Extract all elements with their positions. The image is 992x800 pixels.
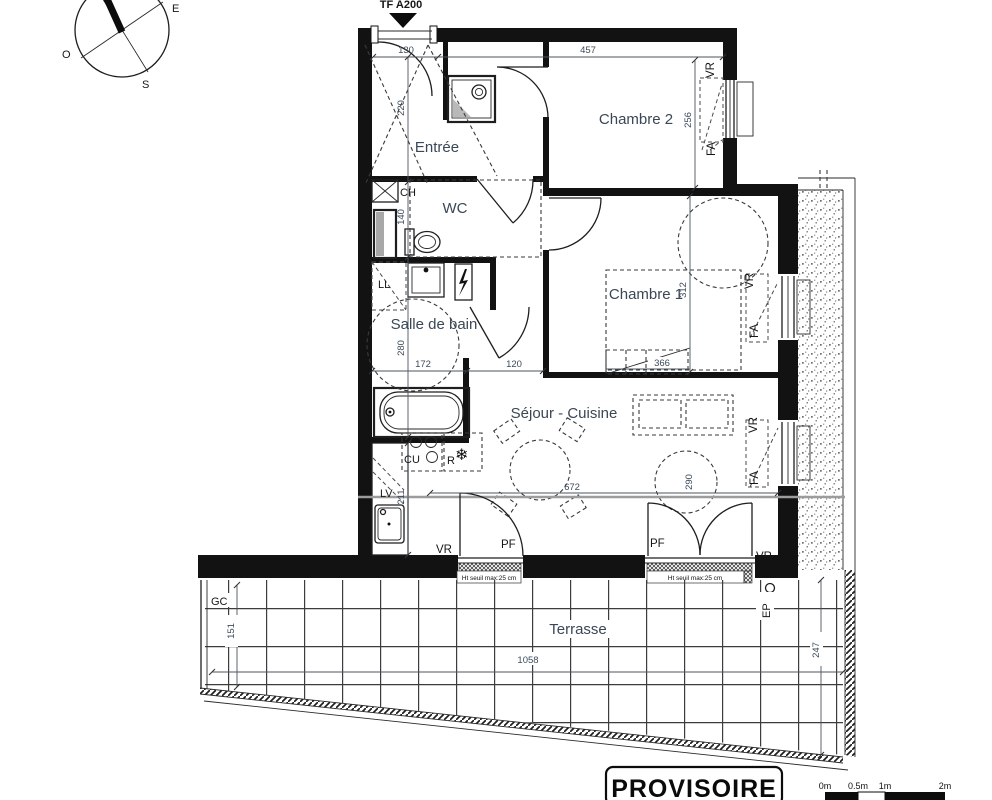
walls: [198, 26, 798, 578]
shower-drain-inner: [475, 88, 482, 95]
label-pf-right: PF: [650, 538, 665, 550]
scale-bar: 0m 0.5m 1m 2m: [819, 781, 952, 800]
compass-east: E: [172, 3, 179, 15]
dim-chambre1-width: 366: [654, 358, 670, 369]
wall-wc-top-right: [533, 176, 543, 182]
wall-facade-mid: [778, 340, 798, 420]
bed-chambre1: [606, 270, 741, 370]
stamp-text: PROVISOIRE: [611, 775, 777, 800]
duct-label: GC: [211, 596, 228, 608]
wall-top: [432, 28, 737, 42]
wall-bottom-left: [198, 555, 458, 578]
shutter-box: [737, 82, 753, 136]
room-label-chambre1: Chambre 1: [609, 286, 683, 303]
wc-zone-dash: [410, 180, 541, 257]
plan-reference: TF A200: [380, 0, 422, 11]
scale-seg-3: [885, 792, 945, 800]
room-label-chambre2: Chambre 2: [599, 111, 673, 128]
tub-rim: [380, 392, 463, 433]
shower-shade: [453, 99, 471, 117]
wall-sdb-stub: [490, 263, 496, 310]
toilet-bowl-inner: [419, 236, 436, 249]
sofa-cushion: [639, 400, 681, 428]
room-label-terrasse: Terrasse: [549, 621, 607, 638]
label-fa-sejour: FA: [749, 471, 761, 485]
wall-wc-top-left: [372, 176, 477, 182]
label-ch: CH: [400, 187, 416, 199]
dim-terrasse-left: 151: [226, 623, 237, 639]
dim-sejour-circle: 290: [684, 474, 695, 490]
entrance-marker: TF A200: [380, 0, 422, 28]
wall-ch2-right-upper: [723, 42, 737, 80]
wall-hall-stub: [543, 42, 549, 67]
sofa-cushion: [686, 400, 728, 428]
wall-step: [723, 184, 798, 196]
dim-chambre2-width: 457: [580, 45, 596, 56]
scale-1m: 1m: [879, 781, 892, 791]
dim-entree-depth: 220: [396, 100, 407, 116]
label-vr-sejour: VR: [748, 417, 760, 433]
dim-kitchen-depth: 211: [396, 489, 407, 504]
dim-terrasse-width: 1058: [517, 655, 538, 666]
wc-cabinet: [374, 210, 396, 258]
dim-sdb-depth: 280: [396, 340, 407, 356]
rain-pipe-label: EP: [761, 603, 773, 618]
shower-drain: [472, 85, 486, 99]
tub-faucet-dot: [389, 411, 392, 414]
lv-dash: [373, 458, 404, 490]
sofa: [633, 395, 733, 435]
door-chambre2-swing: [497, 67, 548, 118]
pf-left: Ht seuil max:25 cm: [457, 493, 523, 583]
footer: PROVISOIRE 0m 0.5m 1m 2m: [606, 767, 951, 800]
label-ll: LL: [378, 279, 390, 291]
label-vr-pf-left: VR: [436, 544, 452, 556]
threshold-hatch: [459, 563, 521, 571]
door-sdb-swing: [470, 307, 529, 358]
wall-bottom-mid: [523, 555, 645, 578]
label-fa-ch2: FA: [706, 142, 718, 156]
label-vr-ch2: VR: [705, 62, 717, 78]
pf-right-swing-r: [700, 503, 752, 556]
tub-inner: [384, 396, 459, 429]
terrace: EP GC Terrasse: [200, 570, 855, 770]
lightning-icon: [459, 269, 468, 296]
chair: [494, 419, 520, 443]
basin-faucet: [424, 268, 429, 273]
window-swing-dash: [702, 84, 722, 150]
equipment-labels: CH LL LV CU R ❄: [378, 187, 468, 500]
window-zone-dash: [700, 78, 723, 142]
dim-sdb-width: 172: [415, 359, 431, 370]
compass-west: O: [62, 49, 71, 61]
snowflake-icon: ❄: [455, 447, 468, 464]
compass-rose: O S E: [62, 0, 179, 91]
scale-2m: 2m: [939, 781, 952, 791]
vanity-basin: [408, 263, 444, 297]
burner: [427, 452, 438, 463]
sink-drain: [388, 523, 391, 526]
compass-axis-ns: [96, 0, 148, 72]
entrance-arrow-icon: [389, 13, 417, 28]
label-r: R: [447, 455, 455, 467]
dim-entree-width: 130: [398, 45, 414, 56]
threshold-hatch: [647, 563, 752, 571]
wall-facade-upper: [778, 196, 798, 274]
compass-circle: [75, 0, 169, 77]
room-label-sdb: Salle de bain: [391, 316, 478, 333]
gravel-strip: [798, 190, 843, 570]
water-heater-closet: [372, 180, 398, 202]
room-label-wc: WC: [443, 200, 468, 217]
opening-labels: VR FA VR FA VR FA VR PF PF VR: [436, 62, 772, 563]
jamb-right: [430, 26, 437, 43]
sink-faucet: [381, 510, 386, 515]
dim-terrasse-right: 247: [811, 642, 822, 658]
wall-ch1-bottom: [549, 372, 778, 378]
compass-south: S: [142, 79, 149, 91]
door-wc-swing: [477, 179, 533, 223]
wall-ch1-left: [543, 250, 549, 378]
scale-0m: 0m: [819, 781, 832, 791]
door-chambre1-swing: [549, 198, 601, 250]
dining-table: [510, 440, 570, 500]
dim-wc-depth: 140: [396, 209, 407, 225]
scale-05m: 0.5m: [848, 781, 868, 791]
chair: [560, 495, 586, 519]
shower: [448, 76, 495, 122]
wall-hall-ch2: [543, 117, 549, 188]
label-cu: CU: [404, 454, 420, 466]
label-vr-ch1: VR: [744, 273, 756, 289]
chair: [491, 492, 517, 516]
scale-seg-1: [825, 792, 858, 800]
exterior-strip: [798, 170, 855, 570]
cabinet-shade: [376, 212, 384, 256]
wall-left: [358, 28, 372, 558]
floor-plan-svg: O S E TF A200: [0, 0, 992, 800]
label-lv: LV: [380, 488, 393, 500]
furniture: [365, 45, 768, 519]
scale-seg-2: [858, 792, 885, 800]
label-pf-left: PF: [501, 539, 516, 551]
room-label-entree: Entrée: [415, 139, 459, 156]
sdb-turning-circle: [367, 299, 459, 391]
electrical-panel: [455, 264, 472, 300]
terrace-right-band: [845, 570, 855, 757]
wall-ch2-bottom: [543, 188, 723, 196]
label-vr-pf-right: VR: [756, 551, 772, 563]
dim-sejour-width: 672: [564, 482, 580, 493]
jamb-left: [371, 26, 378, 43]
room-label-sejour: Séjour - Cuisine: [511, 405, 618, 422]
dim-hall-width: 120: [506, 359, 522, 370]
dim-chambre2-depth: 256: [683, 112, 694, 128]
label-fa-ch1: FA: [749, 324, 761, 338]
doors: [378, 42, 601, 358]
toilet-bowl: [414, 232, 440, 253]
north-needle-icon: [103, 0, 122, 32]
bathtub: [374, 388, 469, 437]
